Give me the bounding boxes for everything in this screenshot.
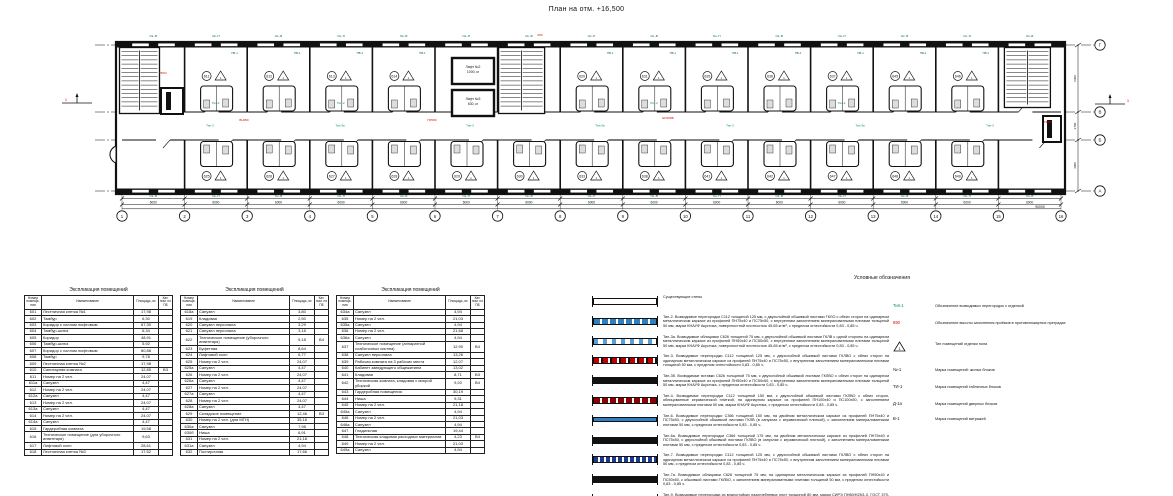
- window-mark: Ок.-В: [776, 34, 783, 38]
- legend-mark-label: Тип-1: [893, 303, 929, 308]
- room-window-mark: ПВ-1: [357, 51, 364, 55]
- bay-dimension: 6000: [964, 201, 971, 205]
- section-number: 1: [65, 97, 68, 102]
- bay-axis-label: Ок.-В: [400, 194, 407, 198]
- window-opening: [784, 43, 801, 46]
- explication-table-1: Экспликация помещенийНомер помеще- нияНа…: [24, 287, 173, 496]
- finish-type-number: 1: [783, 176, 785, 180]
- bay-dimension: 6000: [588, 201, 595, 205]
- fixture: [410, 99, 416, 107]
- window-opening: [847, 190, 864, 193]
- fixture: [642, 100, 648, 108]
- room-category: [159, 449, 173, 455]
- grid-bubble-label: 10: [683, 214, 688, 219]
- explication-title: Экспликация помещений: [180, 287, 329, 293]
- finish-type-number: 1: [658, 176, 660, 180]
- bay-axis-label: Ок.-В: [650, 194, 657, 198]
- window-opening: [534, 43, 551, 46]
- window-opening: [1008, 190, 1025, 193]
- fixture: [661, 146, 667, 154]
- window-opening: [445, 190, 462, 193]
- fixture: [955, 145, 961, 153]
- window-mark: Ок.-В: [901, 34, 908, 38]
- room-number: 614: [391, 74, 397, 78]
- bay-dimension: 6000: [275, 201, 282, 205]
- finish-type-number: 1: [846, 76, 848, 80]
- legend-mark-description: Обозначение возводимых перегородок с отд…: [935, 304, 1167, 308]
- room-number: 645: [892, 74, 898, 78]
- fixture: [329, 145, 335, 153]
- bay-dimension: 6000: [713, 201, 720, 205]
- fixture: [223, 99, 229, 107]
- grid-bubble-label: 15: [996, 214, 1001, 219]
- column-header: Площадь, м²: [290, 295, 315, 309]
- fixture: [598, 99, 604, 107]
- window-mark: Ок.-П: [588, 34, 596, 38]
- window-opening: [909, 190, 926, 193]
- door-leaf: [163, 140, 170, 148]
- window-opening: [534, 190, 551, 193]
- room-number: 636: [767, 74, 773, 78]
- room-number: 611: [204, 74, 210, 78]
- finish-type-number: 1: [220, 76, 222, 80]
- room-number: 626: [266, 174, 272, 178]
- room-category: В4: [471, 378, 485, 389]
- window-opening: [821, 190, 838, 193]
- legend-wall-types: Существующие стеныТип-2. Возводимые пере…: [591, 295, 891, 496]
- window-opening: [408, 190, 425, 193]
- room-window-mark: ПВ-1: [607, 51, 614, 55]
- window-mark: Ок.-П: [838, 34, 846, 38]
- window-opening: [158, 190, 175, 193]
- room-number: 646: [955, 74, 961, 78]
- wall-type-symbol: [593, 456, 657, 463]
- room-window-mark: ПВ-1: [670, 51, 677, 55]
- window-opening: [346, 43, 363, 46]
- window-opening: [132, 190, 149, 193]
- partition-type-label: Тип-3а: [335, 124, 345, 128]
- bay-axis-label: Ок.-В: [150, 194, 157, 198]
- bay-axis-label: Ок.-В: [776, 194, 783, 198]
- finish-type-number: 1: [408, 76, 410, 80]
- window-opening: [257, 43, 274, 46]
- window-mark: Ок.-П: [337, 34, 345, 38]
- column-header: Площадь, м²: [134, 295, 159, 309]
- window-opening: [784, 190, 801, 193]
- fixture: [473, 146, 479, 154]
- fixture: [642, 145, 648, 153]
- room-number: 613: [329, 74, 335, 78]
- room-number: 627: [329, 174, 335, 178]
- legend-marks: Тип-1Обозначение возводимых перегородок …: [893, 295, 1171, 496]
- window-opening: [320, 190, 337, 193]
- room-category: [471, 447, 485, 453]
- room-name: Техническое помещение (уборочного инвент…: [198, 335, 290, 346]
- room-number: 631: [642, 74, 648, 78]
- room-number: 632: [181, 449, 198, 455]
- partition-type-label: Тип-3: [466, 124, 474, 128]
- bay-dimension: 6000: [525, 201, 532, 205]
- table-row: 649аСанузел4,94: [337, 447, 485, 453]
- wall-type-symbol: [593, 377, 657, 384]
- room-category: В4: [315, 335, 329, 346]
- finish-type-number: 1: [220, 176, 222, 180]
- explication-grid: Номер помеще- нияНаименованиеПлощадь, м²…: [336, 295, 485, 455]
- red-mark: ПР02: [159, 71, 167, 75]
- room-name: Постирочная: [198, 449, 290, 455]
- elevator-label: Лифт №3: [466, 97, 481, 101]
- window-opening: [195, 190, 212, 193]
- wall-type-symbol: [593, 437, 657, 444]
- fixture: [723, 99, 729, 107]
- partition-type-label: Тип-3а: [595, 124, 605, 128]
- room-name: Санузел: [354, 447, 446, 453]
- section-arrowhead: [1109, 94, 1112, 98]
- wall-type-description: Тип-6. Возводимые перегородки С366 толщи…: [663, 414, 889, 427]
- window-opening: [909, 43, 926, 46]
- finish-type-number: 1: [533, 176, 535, 180]
- vertical-dim: 4900: [1073, 162, 1077, 169]
- fixture: [830, 100, 836, 108]
- room-number: 635: [704, 74, 710, 78]
- room-number: 625: [204, 174, 210, 178]
- row-bubble-label: Б: [1099, 138, 1102, 143]
- bay-axis-label: Ок.-В: [1026, 194, 1033, 198]
- explication-grid: Номер помеще- нияНаименованиеПлощадь, м²…: [24, 295, 173, 457]
- fixture: [892, 100, 898, 108]
- column-header: Наименование: [354, 295, 446, 309]
- wall-type-description: Тип-6а. Возводимые перегородки С366 толщ…: [663, 434, 889, 447]
- fixture: [849, 99, 855, 107]
- bay-axis-label: Ок.-П: [337, 194, 345, 198]
- wall-type-symbol: [593, 397, 657, 404]
- bay-axis-label: Ок.-П: [713, 194, 721, 198]
- bay-dimension: 6000: [1026, 201, 1033, 205]
- partition-type-label: Тип-3а: [855, 124, 865, 128]
- fixture: [786, 99, 792, 107]
- bay-dimension: 6000: [150, 201, 157, 205]
- room-number: 642: [337, 378, 354, 389]
- window-opening: [821, 43, 838, 46]
- finish-type-number: 1: [595, 76, 597, 80]
- window-opening: [1008, 43, 1025, 46]
- fixture: [391, 145, 397, 153]
- elevator-shaft: [161, 88, 183, 114]
- column-header: Номер помеще- ния: [181, 295, 198, 309]
- fixture: [348, 146, 354, 154]
- partition-type-label: Тип-3: [206, 124, 214, 128]
- legend-title: Условные обозначения: [592, 275, 1172, 281]
- wall-type-symbol: [593, 338, 657, 345]
- red-mark: ПР02: [1044, 120, 1052, 124]
- bay-dimension: 6000: [212, 201, 219, 205]
- room-number: 647: [830, 174, 836, 178]
- fixture: [266, 145, 272, 153]
- finish-type-number: 1: [282, 176, 284, 180]
- room-number: 633: [579, 174, 585, 178]
- column-header: Наименование: [198, 295, 290, 309]
- room-category: [315, 449, 329, 455]
- fixture: [579, 100, 585, 108]
- finish-type-number: 1: [470, 176, 472, 180]
- window-mark: Ок.-В: [525, 34, 532, 38]
- window-opening: [972, 43, 989, 46]
- finish-type-number: 1: [345, 76, 347, 80]
- grid-bubble-label: 16: [1059, 214, 1064, 219]
- finish-type-number: 1: [721, 176, 723, 180]
- window-opening: [508, 43, 525, 46]
- room-number: 629: [454, 174, 460, 178]
- room-area: 4,94: [446, 447, 471, 453]
- bay-axis-label: Ок.-В: [525, 194, 532, 198]
- window-opening: [596, 43, 613, 46]
- wall-type-description: Тип-3б. Возводимые вставки С626 толщиной…: [663, 374, 889, 387]
- legend-mark-label: ТИ-1: [893, 384, 929, 389]
- table-row: 618Лестничная клетка №317,52: [25, 449, 173, 455]
- window-mark: Ок.-П: [462, 34, 470, 38]
- partition-type-label: Тип-2: [212, 101, 220, 105]
- table-row: 632Постирочная17,66: [181, 449, 329, 455]
- window-opening: [659, 43, 676, 46]
- table-row: 616Техническое помещение (для уборочного…: [25, 432, 173, 443]
- fixture: [285, 99, 291, 107]
- column-header: Кат. пом. по ПБ: [471, 295, 485, 309]
- fixture: [204, 145, 210, 153]
- finish-type-number: 1: [721, 76, 723, 80]
- room-number: 637: [337, 341, 354, 352]
- column-header: Площадь, м²: [446, 295, 471, 309]
- room-number: 648: [892, 174, 898, 178]
- finish-type-number: 1: [595, 176, 597, 180]
- bay-dimension: 6000: [463, 201, 470, 205]
- window-opening: [633, 190, 650, 193]
- legend-mark-description: Марка помещений табличных блоков: [935, 385, 1167, 389]
- explication-title: Экспликация помещений: [24, 287, 173, 293]
- fixture: [266, 100, 272, 108]
- wall-type-description: Тип-3а. Возводимые облицовки С626 толщин…: [663, 335, 889, 348]
- fixture: [974, 99, 980, 107]
- window-opening: [758, 190, 775, 193]
- wall-type-symbol: [593, 417, 657, 422]
- bay-dimension: 6000: [338, 201, 345, 205]
- window-mark: Ок.-В: [650, 34, 657, 38]
- wall-type-description: Тип-4. Возводимые перегородки С112 толщи…: [663, 394, 889, 407]
- room-category: [159, 432, 173, 443]
- window-opening: [659, 190, 676, 193]
- shaft-fill: [166, 92, 171, 110]
- room-category: В4: [471, 341, 485, 352]
- bay-axis-label: Ок.-П: [462, 194, 470, 198]
- vertical-dim: 2700: [1073, 122, 1077, 129]
- wall-type-symbol: [593, 298, 657, 305]
- window-opening: [257, 190, 274, 193]
- window-opening: [283, 43, 300, 46]
- window-opening: [158, 43, 175, 46]
- partition-type-label: Тип-2: [838, 101, 846, 105]
- red-mark: 690: [537, 33, 542, 37]
- bay-dimension: 6000: [776, 201, 783, 205]
- window-opening: [946, 190, 963, 193]
- legend-mark-label: 690: [893, 320, 929, 325]
- table-row: 622Техническое помещение (уборочного инв…: [181, 335, 329, 346]
- window-mark: Ок.-П: [212, 34, 220, 38]
- finish-type-number: 1: [846, 176, 848, 180]
- bay-axis-label: Ок.-П: [212, 194, 220, 198]
- partition-type-label: Тип-2: [337, 101, 345, 105]
- window-opening: [221, 190, 238, 193]
- window-mark: Ок.-В: [150, 34, 157, 38]
- window-mark: Ок.-П: [963, 34, 971, 38]
- floor-plan: ГВБА630027004900Лифт №21000, кгЛифт №363…: [0, 0, 1173, 262]
- window-opening: [471, 43, 488, 46]
- room-number: 612: [266, 74, 272, 78]
- window-opening: [320, 43, 337, 46]
- fixture: [704, 145, 710, 153]
- room-area: 5,18: [290, 335, 315, 346]
- fixture: [410, 146, 416, 154]
- finish-type-number: 1: [971, 176, 973, 180]
- wall-type-symbol: [593, 476, 657, 483]
- fixture: [786, 146, 792, 154]
- column-header: Номер помеще- ния: [337, 295, 354, 309]
- window-opening: [695, 190, 712, 193]
- window-opening: [1034, 43, 1051, 46]
- bay-dimension: 6000: [651, 201, 658, 205]
- partition-type-label: Тип-2: [650, 101, 658, 105]
- fixture: [911, 99, 917, 107]
- elevator-label: 1000, кг: [467, 70, 480, 74]
- window-opening: [1034, 190, 1051, 193]
- grid-bubble-label: 11: [746, 214, 751, 219]
- window-opening: [221, 43, 238, 46]
- triangle-icon: 1: [893, 341, 906, 352]
- section-arrowhead: [76, 93, 79, 97]
- explication-table-2: Экспликация помещенийНомер помеще- нияНа…: [180, 287, 329, 496]
- bay-dimension: 6000: [901, 201, 908, 205]
- row-bubble-label: А: [1098, 189, 1101, 194]
- window-opening: [758, 43, 775, 46]
- fixture: [285, 146, 291, 154]
- fixture: [391, 100, 397, 108]
- window-opening: [408, 43, 425, 46]
- fixture: [723, 146, 729, 154]
- fixture: [661, 99, 667, 107]
- legend-mark-description: Марка помещений витражей: [935, 417, 1167, 421]
- window-mark: Ок.-В: [275, 34, 282, 38]
- legend-mark-label: В-1: [893, 416, 929, 421]
- bay-axis-label: Ок.-П: [963, 194, 971, 198]
- window-opening: [570, 190, 587, 193]
- section-number: 1: [1127, 98, 1130, 103]
- room-window-mark: ПВ-1: [857, 51, 864, 55]
- window-opening: [195, 43, 212, 46]
- fixture: [329, 100, 335, 108]
- window-opening: [633, 43, 650, 46]
- fixture: [536, 146, 542, 154]
- red-mark: ВН050: [239, 118, 249, 122]
- legend-mark-label: №-1: [893, 367, 929, 372]
- room-area: 9,20: [446, 378, 471, 389]
- room-number: 637: [830, 74, 836, 78]
- window-opening: [721, 43, 738, 46]
- fixture: [579, 145, 585, 153]
- room-number: 642: [767, 174, 773, 178]
- column-header: Кат. пом. по ПБ: [315, 295, 329, 309]
- drawing-sheet: План на отм. +16,500 ГВБА630027004900Лиф…: [0, 0, 1173, 496]
- red-mark: ЕИ150В: [662, 116, 673, 120]
- legend-mark-description: Марка помещений: жилых блоков: [935, 368, 1167, 372]
- finish-type-number: 1: [408, 176, 410, 180]
- fixture: [454, 145, 460, 153]
- explication-title: Экспликация помещений: [336, 287, 485, 293]
- window-opening: [382, 190, 399, 193]
- building-outline: [116, 42, 1065, 194]
- window-mark: Ок.-П: [713, 34, 721, 38]
- window-opening: [972, 190, 989, 193]
- wall-type-symbol: [593, 357, 657, 364]
- fixture: [955, 100, 961, 108]
- finish-type-number: 1: [345, 176, 347, 180]
- window-opening: [596, 190, 613, 193]
- room-area: 9,63: [134, 432, 159, 443]
- window-opening: [346, 190, 363, 193]
- legend-mark-description: Марка помещений дверных блоков: [935, 402, 1167, 406]
- partition-type-label: Тип-3: [726, 124, 734, 128]
- room-name: Техническое помещение (для уборочного ин…: [42, 432, 134, 443]
- fixture: [830, 145, 836, 153]
- window-opening: [508, 190, 525, 193]
- window-opening: [132, 43, 149, 46]
- room-window-mark: ПВ-1: [732, 51, 739, 55]
- window-opening: [883, 190, 900, 193]
- finish-type-number: 1: [783, 76, 785, 80]
- fixture: [767, 100, 773, 108]
- fixture: [892, 145, 898, 153]
- bay-axis-label: Ок.-В: [275, 194, 282, 198]
- room-number: 649: [955, 174, 961, 178]
- legend-mark-label: Д-1а: [893, 401, 929, 406]
- table-row: 642Техническая комната, кладовая с мокро…: [337, 378, 485, 389]
- room-number: 641: [704, 174, 710, 178]
- grid-bubble-label: 14: [933, 214, 938, 219]
- window-opening: [695, 43, 712, 46]
- partition-type-label: Тип-3: [986, 124, 994, 128]
- window-opening: [946, 43, 963, 46]
- finish-type-number: 1: [908, 76, 910, 80]
- window-mark: Ок.-В: [400, 34, 407, 38]
- window-opening: [283, 190, 300, 193]
- column-header: Наименование: [42, 295, 134, 309]
- vertical-dim: 6300: [1073, 75, 1077, 82]
- fixture: [204, 100, 210, 108]
- room-number: 630: [517, 174, 523, 178]
- row-bubble-label: В: [1098, 110, 1101, 115]
- room-number: 638: [642, 174, 648, 178]
- grid-bubble-label: 13: [871, 214, 876, 219]
- total-dimension: 90000: [1035, 205, 1045, 209]
- room-window-mark: ПВ-1: [294, 51, 301, 55]
- facade-bump: [110, 146, 116, 163]
- wall-type-description: Тип-2. Возводимые перегородки С112 толщи…: [663, 315, 889, 328]
- bay-axis-label: Ок.-В: [901, 194, 908, 198]
- window-opening: [847, 43, 864, 46]
- room-number: 616: [25, 432, 42, 443]
- elevator-label: Лифт №2: [466, 65, 481, 69]
- room-number: 649а: [337, 447, 354, 453]
- fixture: [223, 146, 229, 154]
- window-opening: [445, 43, 462, 46]
- finish-type-triangle: 1: [893, 341, 929, 353]
